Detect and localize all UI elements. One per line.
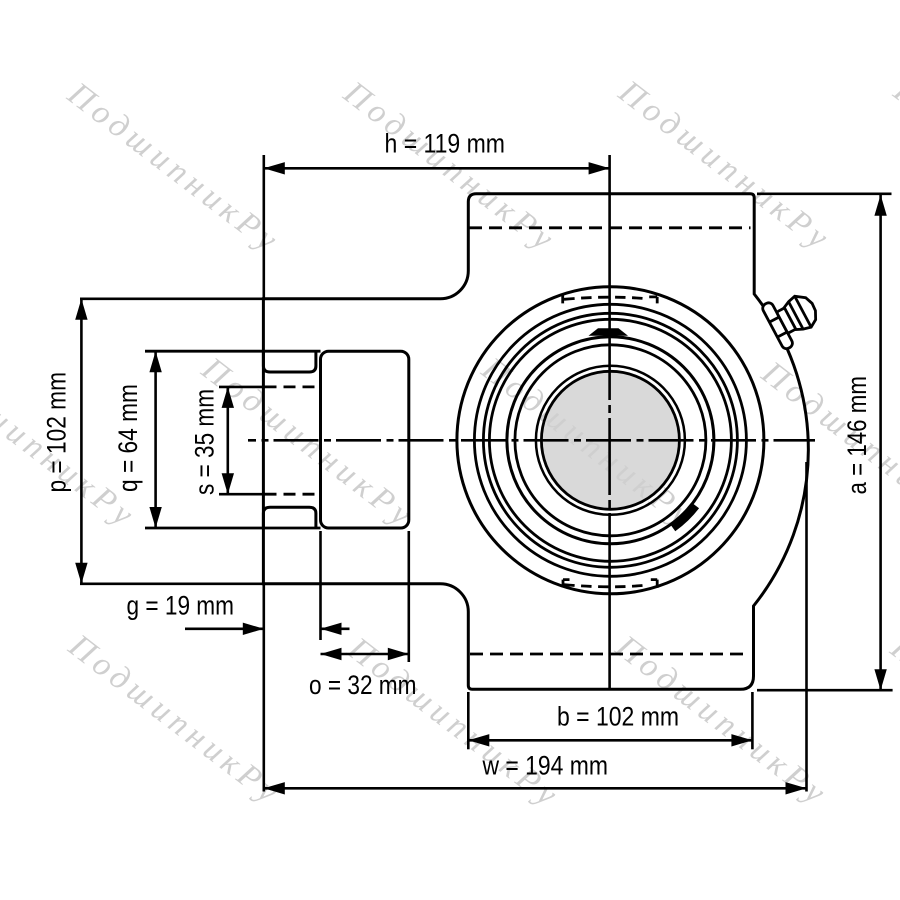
svg-text:w = 194 mm: w = 194 mm bbox=[482, 751, 608, 781]
svg-text:s = 35 mm: s = 35 mm bbox=[189, 389, 219, 495]
svg-text:b = 102 mm: b = 102 mm bbox=[557, 701, 679, 731]
svg-text:q = 64 mm: q = 64 mm bbox=[113, 384, 143, 492]
svg-text:a = 146 mm: a = 146 mm bbox=[842, 376, 872, 495]
svg-text:g = 19 mm: g = 19 mm bbox=[127, 591, 235, 621]
svg-text:h = 119 mm: h = 119 mm bbox=[385, 129, 506, 159]
svg-text:o = 32 mm: o = 32 mm bbox=[309, 670, 417, 700]
svg-text:p = 102 mm: p = 102 mm bbox=[41, 372, 71, 493]
